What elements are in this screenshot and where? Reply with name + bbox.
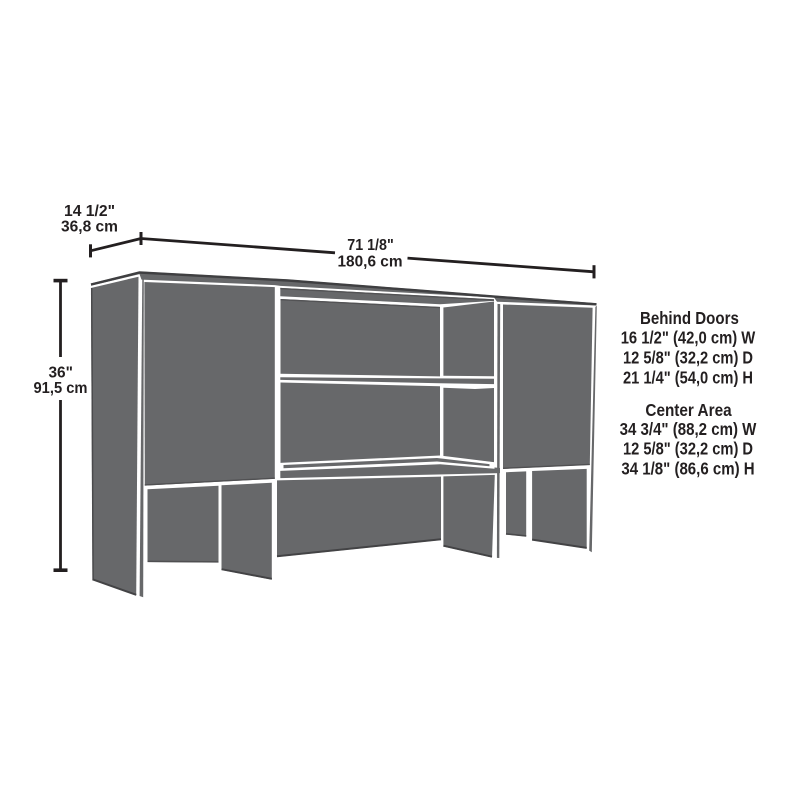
svg-text:34 1/8" (86,6 cm) H: 34 1/8" (86,6 cm) H — [621, 459, 754, 479]
svg-text:36,8 cm: 36,8 cm — [61, 219, 118, 236]
svg-text:180,6 cm: 180,6 cm — [338, 253, 403, 270]
svg-text:Center Area: Center Area — [645, 400, 731, 420]
svg-text:14 1/2": 14 1/2" — [64, 203, 115, 220]
svg-text:91,5 cm: 91,5 cm — [34, 380, 88, 397]
svg-text:36": 36" — [48, 364, 73, 381]
svg-text:Behind Doors: Behind Doors — [640, 308, 739, 328]
svg-text:16 1/2" (42,0 cm) W: 16 1/2" (42,0 cm) W — [621, 328, 756, 348]
svg-text:71 1/8": 71 1/8" — [347, 237, 394, 254]
svg-text:12 5/8" (32,2 cm) D: 12 5/8" (32,2 cm) D — [623, 348, 753, 368]
svg-text:21 1/4" (54,0 cm) H: 21 1/4" (54,0 cm) H — [623, 368, 753, 388]
svg-text:12 5/8" (32,2 cm) D: 12 5/8" (32,2 cm) D — [623, 438, 753, 458]
svg-text:34 3/4" (88,2 cm) W: 34 3/4" (88,2 cm) W — [620, 419, 757, 439]
